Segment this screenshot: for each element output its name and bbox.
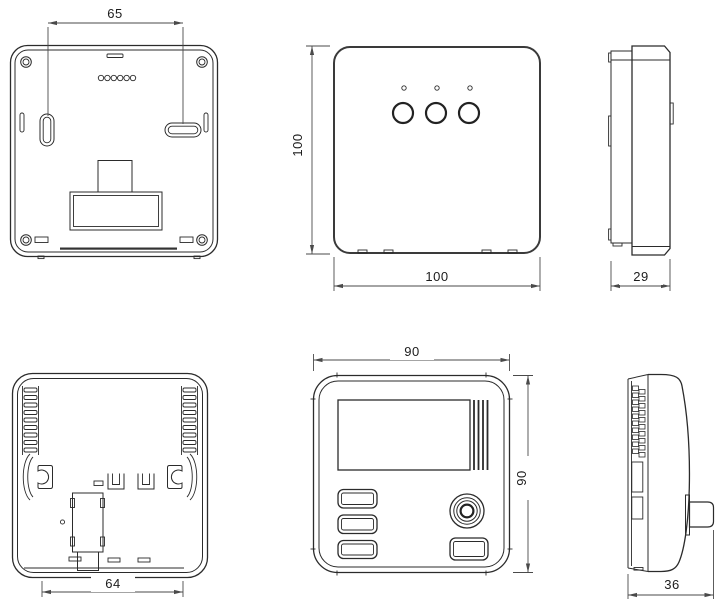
receiver-front-view	[334, 47, 540, 253]
receiver-leds	[402, 86, 472, 90]
bottom-notch	[482, 250, 491, 253]
dimension-label-receiver-height: 100	[290, 123, 306, 167]
keyhole-edge-recess	[632, 462, 643, 492]
sensor-hole	[60, 520, 64, 524]
keyhole-right	[168, 454, 197, 500]
button-3	[459, 103, 479, 123]
dimension-label-receiver-depth: 29	[619, 269, 663, 285]
bottom-right-button	[450, 538, 488, 560]
receiver-buttons	[393, 103, 479, 123]
cover-profile	[632, 46, 670, 255]
button-2	[426, 103, 446, 123]
thermostat-back-view	[13, 374, 208, 578]
bottom-slot	[69, 557, 81, 561]
thermostat-front-inner-outline	[319, 381, 504, 567]
backplate-profile	[611, 51, 632, 243]
thermostat-front-outline	[314, 376, 510, 573]
terminal-cover	[70, 192, 162, 230]
display-grille	[474, 400, 488, 470]
thermostat-back-inner-outline	[18, 379, 203, 573]
thermostat-front-view	[311, 373, 513, 576]
led-2	[435, 86, 439, 90]
receiver-back-outline	[11, 46, 218, 257]
dimension-label-receiver-width: 100	[415, 269, 459, 285]
cover-profile-curved	[648, 375, 689, 572]
battery-compartment	[71, 493, 105, 571]
top-slot	[107, 54, 123, 58]
thermostat-side-view	[628, 375, 714, 572]
dimension-label-thermostat-width: 90	[390, 344, 434, 360]
button-top	[338, 490, 377, 509]
bottom-groove	[60, 248, 177, 250]
dimension-label-receiver-mount-spacing: 65	[93, 6, 137, 22]
dimension-label-thermostat-depth: 36	[650, 577, 694, 593]
led-1	[402, 86, 406, 90]
foot-left	[38, 256, 44, 259]
bottom-left-tab	[35, 237, 48, 243]
bottom-notch	[384, 250, 393, 253]
rotary-knob	[450, 494, 484, 528]
dimension-label-thermostat-height: 90	[514, 456, 530, 500]
dimension-lines	[42, 21, 714, 599]
mounting-slot-vertical	[40, 114, 54, 146]
button-1	[393, 103, 413, 123]
receiver-back-view	[11, 46, 218, 259]
bottom-notch	[508, 250, 517, 253]
vent-hatch	[633, 386, 646, 457]
cable-channel	[98, 161, 132, 193]
left-edge-slot	[20, 113, 24, 132]
drawing-linework	[0, 0, 720, 609]
keyhole-edge-recess-lower	[632, 497, 643, 519]
bottom-notch	[358, 250, 367, 253]
vent-ladder-left	[23, 386, 39, 455]
thermostat-back-outline	[13, 374, 208, 578]
button-middle	[338, 515, 377, 534]
dimension-label-thermostat-mount-spacing: 64	[91, 576, 135, 592]
keyhole-left	[23, 454, 52, 500]
left-buttons	[338, 490, 377, 559]
backplate-foot	[613, 243, 622, 246]
terminal-cover-inner	[74, 196, 159, 227]
receiver-side-view	[609, 46, 674, 255]
bottom-right-tab	[180, 237, 193, 243]
button-bottom	[338, 541, 377, 559]
vent-holes	[98, 75, 135, 80]
mounting-slot-horizontal	[165, 123, 201, 137]
display	[338, 400, 470, 470]
foot-right	[194, 256, 200, 259]
right-edge-slot	[204, 113, 208, 132]
receiver-front-outline	[334, 47, 540, 253]
led-3	[468, 86, 472, 90]
knob-side-profile	[686, 495, 714, 535]
clip-hooks	[108, 474, 154, 490]
bottom-slot	[108, 558, 120, 562]
screw-holes	[21, 57, 208, 246]
vent-ladder-right	[182, 386, 198, 455]
bottom-slot	[138, 558, 150, 562]
small-slot	[94, 481, 103, 486]
technical-drawing-canvas: 65 100 100 29 90 90 64 36	[0, 0, 720, 609]
